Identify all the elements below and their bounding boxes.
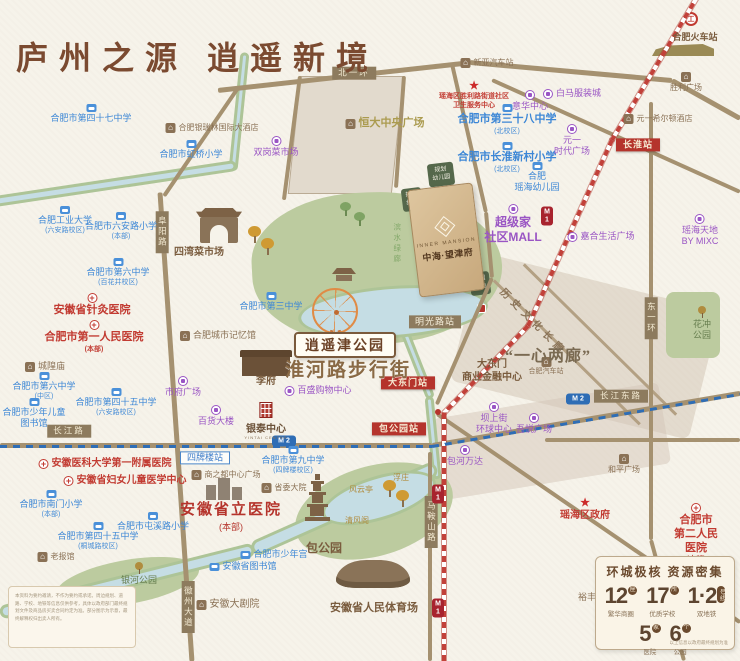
road-label-fuyanglu: 阜阳路 <box>156 211 169 253</box>
tree-icon <box>134 562 144 574</box>
school-icon <box>113 258 123 266</box>
label-text: 合肥市第四十五中学 <box>57 531 138 542</box>
label-text: 安徽医科大学第一附属医院 <box>52 458 172 471</box>
label-text: 阜阳路 <box>157 216 168 248</box>
metro-line2-badge: M2 <box>566 394 590 405</box>
label-text: 合肥 瑶海幼儿园 <box>514 171 559 194</box>
landmark-icon: ⌂ <box>681 72 691 82</box>
park-yinhe: 银河公园 <box>121 562 157 586</box>
mall-icon <box>525 90 535 100</box>
hospital-cross-icon: + <box>64 476 74 486</box>
project-logo-icon <box>434 216 455 237</box>
venue-city-memory-hall: ⌂合肥城市记忆馆 <box>180 330 256 341</box>
label-text: 省委大院 <box>275 483 307 493</box>
mall-icon <box>508 204 518 214</box>
stat-metro-lines: 1·2号线 双地铁 <box>688 585 726 618</box>
label-text: 银河公园 <box>121 575 157 586</box>
school-icon <box>148 512 158 520</box>
ferris-wheel-icon <box>312 288 358 334</box>
metro-line-number: 2 <box>580 396 584 403</box>
mall-yihua-center: 意华中心 <box>512 90 548 112</box>
road-maanshanlu <box>428 452 432 661</box>
label-text: 瑶海天地 BY MIXC <box>682 225 719 248</box>
metro-line1-badge: M1 <box>432 485 444 504</box>
landmark-icon: ⌂ <box>25 362 35 372</box>
star-icon: ★ <box>580 498 590 509</box>
school-icon <box>86 104 96 112</box>
road-hepinglu <box>545 438 740 442</box>
stadium-icon <box>336 560 410 588</box>
label-text: 恒大中央广场 <box>359 117 425 131</box>
station-baogongyuan: 包公园站 <box>372 422 426 435</box>
autumn-tree-icon <box>396 490 409 507</box>
metro2-line <box>0 445 432 448</box>
school-no45-luanlu: 合肥市第四十五中学(六安路校区) <box>75 388 156 418</box>
mall-icon <box>271 136 281 146</box>
venue-laobaoguan: ⌂老报馆 <box>38 552 75 562</box>
label-text: 合肥市第四十七中学 <box>50 113 131 124</box>
yintai-logo-icon <box>260 402 273 418</box>
stat-number: 5 <box>639 623 650 645</box>
map-canvas: M1 M1 M1 M2 M2 工 INNER MANSION 中海·望津府 规划… <box>0 0 740 661</box>
label-text: 元一 时代广场 <box>554 135 590 158</box>
stat-label: 双地铁 <box>688 608 726 618</box>
landmark-icon: ⌂ <box>624 114 634 124</box>
yintai-center-label: 银泰中心 YINTAI CENTRE <box>244 402 287 440</box>
venue-fuzhuang: 浮庄 <box>393 473 409 483</box>
label-text: 嘉合生活广场 <box>580 231 634 242</box>
stats-title: 环城极核 资源密集 <box>600 563 730 580</box>
stat-label: 繁华商圈 <box>605 608 637 618</box>
landmark-icon: ⌂ <box>619 454 629 464</box>
label-text: 城隍庙 <box>38 361 65 372</box>
mall-icon <box>178 376 188 386</box>
provincial-hospital-sub: (本部) <box>180 520 282 533</box>
label-text: 马鞍山路 <box>426 501 437 543</box>
school-icon <box>288 446 298 454</box>
landmark-icon: ⌂ <box>461 58 471 68</box>
label-text: 合肥市第九中学 <box>261 455 324 466</box>
label-text: 徽州大道 <box>183 586 194 628</box>
stat-unit: 号线 <box>717 586 725 603</box>
school-icon <box>266 292 276 300</box>
mall-icon <box>489 402 499 412</box>
school-icon <box>60 206 70 214</box>
hengda-parcel <box>288 76 404 194</box>
label-text: 合肥市第四十五中学 <box>75 397 156 408</box>
yixin-lianglang-label: “一心两廊” <box>505 342 591 366</box>
label-subtext: (本部) <box>85 346 104 355</box>
label-text: 新亚汽车站 <box>474 58 514 68</box>
tree-icon <box>354 212 367 229</box>
label-text: 合肥市少年宫 <box>253 549 307 560</box>
venue-baogong-park: 包公园 <box>306 541 342 556</box>
venue-hengda-central-plaza: ⌂恒大中央广场 <box>346 117 425 131</box>
xiaoyaojin-park-label: 逍遥津公园 <box>294 332 396 358</box>
disclaimer-box: 本资料为要约邀请，不作为要约或承诺。周边规划、道路、学校、地铁等信息仅供参考，具… <box>8 586 136 648</box>
label-text: 合肥银瑞林国际大酒店 <box>179 123 259 133</box>
label-text: 坝上街 环球中心 <box>476 413 512 436</box>
mall-icon <box>695 214 705 224</box>
school-icon <box>93 522 103 530</box>
stat-label: 医院 <box>639 646 660 656</box>
school-icon <box>39 372 49 380</box>
stat-unit: 座 <box>628 586 637 595</box>
interchange-dot <box>435 409 441 415</box>
label-text: 胜利广场 <box>670 83 702 93</box>
planned-kindergarten-parcel: 规划 幼儿园 <box>427 161 456 187</box>
label-text: 瑶海区政府 <box>560 510 610 523</box>
label-text: 安徽省针灸医院 <box>54 304 131 318</box>
school-no6-baihuajing: 合肥市第六中学(百花井校区) <box>86 258 149 288</box>
venue-anhui-grand-theatre: ⌂安徽大剧院 <box>197 599 260 612</box>
hospital-cross-icon: + <box>691 503 701 513</box>
label-subtext: (本部) <box>42 511 61 520</box>
metro-line-number: 1 <box>436 608 440 616</box>
label-text: 合肥汽车站 <box>529 368 564 377</box>
school-icon <box>46 490 56 498</box>
label-text: 合肥工业大学 <box>38 215 92 226</box>
landmark-icon: ⌂ <box>262 483 272 493</box>
school-hongqiao-primary: 合肥市虹桥小学 <box>159 140 222 160</box>
hospital-cross-icon: + <box>39 459 49 469</box>
label-subtext: (本部) <box>112 233 131 242</box>
label-text: 商之都中心广场 <box>205 470 261 480</box>
star-icon: ★ <box>469 81 479 92</box>
pavilion-icon <box>330 268 358 282</box>
huaihe-pedestrian-street-label: 淮河路步行街 <box>285 355 411 382</box>
metro-m: M <box>435 600 441 608</box>
stat-schools: 17所 优质学校 <box>646 585 678 618</box>
metro-line1-badge: M1 <box>432 599 444 618</box>
tree-icon <box>697 306 707 318</box>
label-text: 合肥市少年儿童 图书馆 <box>2 407 65 430</box>
label-subtext: (四牌楼校区) <box>273 467 313 476</box>
metro-line-number: 1 <box>545 216 549 224</box>
road-label-changjiangdonglu: 长江东路 <box>594 390 648 403</box>
venue-heping-square: ⌂和平广场 <box>608 454 640 475</box>
label-text: 合肥市虹桥小学 <box>159 149 222 160</box>
label-text: 四牌楼站 <box>187 452 223 463</box>
project-parcel: INNER MANSION 中海·望津府 <box>407 182 486 297</box>
mall-wuyue-plaza: 吾悦广场 <box>516 413 552 435</box>
rail-glyph: 工 <box>688 14 695 24</box>
label-text: 合肥城市记忆馆 <box>193 330 256 341</box>
venue-xinya-bus-station: ⌂新亚汽车站 <box>461 58 514 68</box>
school-icon <box>532 162 542 170</box>
label-text: 元一希尔顿酒店 <box>637 114 693 124</box>
gov-yaohai-district: ★瑶海区政府 <box>560 498 610 523</box>
mall-icon <box>211 405 221 415</box>
road-label-huizhoudadao: 徽州大道 <box>182 581 195 633</box>
hospital-cross-icon: + <box>87 293 97 303</box>
school-nanmen-primary: 合肥市南门小学(本部) <box>19 490 82 520</box>
venue-chenghuang-temple: ⌂城隍庙 <box>25 361 65 372</box>
metro-m: M <box>572 396 578 403</box>
label-text: 超级家 社区MALL <box>484 215 541 245</box>
school-icon <box>502 142 512 150</box>
provincial-hospital-label: 安徽省立医院 (本部) <box>180 498 282 533</box>
mall-jiahe-life: 嘉合生活广场 <box>567 231 634 242</box>
hospital-women-children: +安徽省妇女儿童医学中心 <box>64 475 187 488</box>
autumn-tree-icon <box>261 238 274 255</box>
label-text: 明光路站 <box>415 316 455 327</box>
label-text: 合肥火车站 <box>673 32 718 43</box>
river <box>0 160 237 207</box>
stat-unit: 家 <box>652 624 661 633</box>
venue-shengli-square: ⌂胜利广场 <box>670 72 702 93</box>
school-yaohai-kindergarten: 合肥 瑶海幼儿园 <box>514 162 559 194</box>
provincial-hospital-name: 安徽省立医院 <box>180 498 282 519</box>
label-text: 安徽省妇女儿童医学中心 <box>77 475 187 488</box>
label-text: 老报馆 <box>51 552 75 562</box>
venue-siwan-market: 四湾菜市场 <box>174 247 224 260</box>
venue-shengwei-compound: ⌂省委大院 <box>262 483 307 493</box>
hospital-cross-icon: + <box>89 320 99 330</box>
label-text: 合肥市第六中学 <box>12 381 75 392</box>
landmark-icon: ⌂ <box>38 552 48 562</box>
label-text: 合肥市第三十八中学 <box>458 113 557 127</box>
venue-qingfeng-pavilion: 清风阁 <box>345 516 369 526</box>
label-text: 瑶海区胜利路街道社区 卫生服务中心 <box>439 93 509 111</box>
autumn-tree-icon <box>248 226 261 243</box>
label-text: 双岗菜市场 <box>253 147 298 158</box>
tree-icon <box>340 202 353 219</box>
school-icon <box>209 563 219 571</box>
market-gate-icon <box>196 208 242 248</box>
label-text: 清风阁 <box>345 516 369 526</box>
label-text: 长淮站 <box>623 139 653 150</box>
landmark-icon: ⌂ <box>166 123 176 133</box>
label-text: 花冲 公园 <box>693 319 711 342</box>
anhui-library: 安徽省图书馆 <box>209 561 276 572</box>
landmark-icon: ⌂ <box>346 119 356 129</box>
mall-icon <box>460 445 470 455</box>
stat-unit: 个 <box>682 624 691 633</box>
hospital-first-people: +合肥市第一人民医院(本部) <box>45 320 144 355</box>
school-hfut: 合肥工业大学(六安路校区) <box>38 206 92 236</box>
school-icon <box>29 398 39 406</box>
label-text: 东一环 <box>646 302 657 334</box>
label-text: 包公园站 <box>379 423 419 434</box>
label-text: 合肥市第六中学 <box>86 267 149 278</box>
label-text: 风云亭 <box>349 485 373 495</box>
hospital-acupuncture: +安徽省针灸医院 <box>54 293 131 318</box>
label-subtext: (北校区) <box>494 128 520 137</box>
stats-row: 12座 繁华商圈 17所 优质学校 1·2号线 双地铁 <box>600 585 730 618</box>
label-text: 合肥市六安路小学 <box>85 221 157 232</box>
green-corridor-label: 滨水绿廊 <box>392 223 401 265</box>
label-subtext: (六安路校区) <box>45 227 85 236</box>
mall-icon <box>284 386 294 396</box>
venue-hefei-railway-station: 合肥火车站 <box>673 32 718 43</box>
school-icon <box>240 551 250 559</box>
landmark-icon: ⌂ <box>197 600 207 610</box>
label-subtext: (六安路校区) <box>96 409 136 418</box>
label-text: 合肥市第一人民医院 <box>45 331 144 345</box>
venue-yinruilin-hotel: ⌂合肥银瑞林国际大酒店 <box>166 123 259 133</box>
school-luanlu-primary: 合肥市六安路小学(本部) <box>85 212 157 242</box>
library-children: 合肥市少年儿童 图书馆 <box>2 398 65 430</box>
label-text: 市府广场 <box>165 387 201 398</box>
mall-icon <box>567 124 577 134</box>
stat-number: 1·2 <box>688 585 717 607</box>
metro-line-number: 1 <box>436 494 440 502</box>
mall-shuanggang-market: 双岗菜市场 <box>253 136 298 158</box>
landmark-icon: ⌂ <box>180 331 190 341</box>
label-text: 安徽省图书馆 <box>222 561 276 572</box>
label-text: 滨水绿廊 <box>392 223 401 265</box>
school-icon <box>111 388 121 396</box>
venue-lifu: 李府 <box>256 376 276 389</box>
mall-yaohai-mixc: 瑶海天地 BY MIXC <box>682 214 719 248</box>
road-label-maanshanlu: 马鞍山路 <box>425 496 438 548</box>
railway-metro1-line <box>442 413 446 661</box>
pagoda-icon <box>302 474 332 521</box>
stat-number: 17 <box>646 585 668 607</box>
label-text: 意华中心 <box>512 101 548 112</box>
venue-fengyun-pavilion: 风云亭 <box>349 485 373 495</box>
station-changhuai: 长淮站 <box>616 138 660 151</box>
mall-icon <box>529 413 539 423</box>
school-icon <box>186 140 196 148</box>
youth-palace: 合肥市少年宫 <box>240 549 307 560</box>
stat-label: 公园 <box>670 646 691 656</box>
label-text: 合肥市屯溪路小学 <box>117 521 189 532</box>
stat-number: 12 <box>605 585 627 607</box>
venue-shangzhidu-plaza: ⌂商之都中心广场 <box>192 470 261 480</box>
label-text: 白马服装城 <box>556 88 601 99</box>
label-text: 合肥市南门小学 <box>19 499 82 510</box>
label-text: 四湾菜市场 <box>174 247 224 260</box>
park-huachong: 花冲 公园 <box>693 306 711 342</box>
metro-m: M <box>435 486 441 494</box>
label-text: 百盛购物中心 <box>297 385 351 396</box>
school-no9-middle: 合肥市第九中学(四牌楼校区) <box>261 446 324 476</box>
label-text: 安徽省人民体育场 <box>330 602 418 616</box>
metro-line1-badge: M1 <box>541 207 553 226</box>
mall-parkson: 百盛购物中心 <box>284 385 351 396</box>
mall-baima-clothing: 白马服装城 <box>543 88 601 99</box>
label-text: 安徽大剧院 <box>210 599 260 612</box>
label-subtext: (桐城路校区) <box>78 543 118 552</box>
mall-icon <box>567 232 577 242</box>
stat-label: 优质学校 <box>646 608 678 618</box>
mall-department-store: 百货大楼 <box>198 405 234 427</box>
stat-unit: 所 <box>670 586 679 595</box>
school-tunxilu-primary: 合肥市屯溪路小学 <box>117 512 189 532</box>
venue-people-stadium: 安徽省人民体育场 <box>330 602 418 616</box>
mall-yuanyi-times: 元一 时代广场 <box>554 124 590 158</box>
page-title: 庐州之源 逍遥新境 <box>16 33 379 79</box>
yintai-name-en: YINTAI CENTRE <box>244 435 287 440</box>
hospital-anmed-first: +安徽医科大学第一附属医院 <box>39 458 172 471</box>
mall-baohe-wanda: 包河万达 <box>447 445 483 467</box>
mall-superhome-community: 超级家 社区MALL <box>484 204 541 245</box>
station-sipailou: 四牌楼站 <box>180 451 230 464</box>
label-text: 合肥市第三中学 <box>239 301 302 312</box>
school-no3-middle: 合肥市第三中学 <box>239 292 302 312</box>
label-text: 百货大楼 <box>198 416 234 427</box>
label-text: 长江东路 <box>600 391 642 402</box>
stat-business-circles: 12座 繁华商圈 <box>605 585 637 618</box>
stats-panel: 环城极核 资源密集 12座 繁华商圈 17所 优质学校 1·2号线 双地铁 5家… <box>595 556 735 650</box>
gov-health-center: ★瑶海区胜利路街道社区 卫生服务中心 <box>439 81 509 111</box>
label-text: 包公园 <box>306 541 342 556</box>
yintai-name: 银泰中心 <box>244 420 287 435</box>
label-text: 和平广场 <box>608 465 640 475</box>
station-mingguanglu: 明光路站 <box>409 315 461 328</box>
landmark-icon: ⌂ <box>192 470 202 480</box>
label-text: 李府 <box>256 376 276 389</box>
mall-bashangjie-global: 坝上街 环球中心 <box>476 402 512 436</box>
road-label-dongyihuan: 东一环 <box>645 297 658 339</box>
label-text: 浮庄 <box>393 473 409 483</box>
metro-m: M <box>544 208 550 216</box>
hospital-building-icon <box>206 478 242 500</box>
stats-footnote: 以上信息以政府最终规划为准 <box>670 640 729 646</box>
label-subtext: (百花井校区) <box>98 279 138 288</box>
label-text: 包河万达 <box>447 456 483 467</box>
mall-shifu-square: 市府广场 <box>165 376 201 398</box>
school-icon <box>116 212 126 220</box>
label-text: 合肥市 第二人民医院 <box>674 514 718 555</box>
school-no47-middle: 合肥市第四十七中学 <box>50 104 131 124</box>
venue-hilton-hotel: ⌂元一希尔顿酒店 <box>624 114 693 124</box>
stat-hospitals: 5家 医院 <box>639 623 660 656</box>
label-text: 吾悦广场 <box>516 424 552 435</box>
